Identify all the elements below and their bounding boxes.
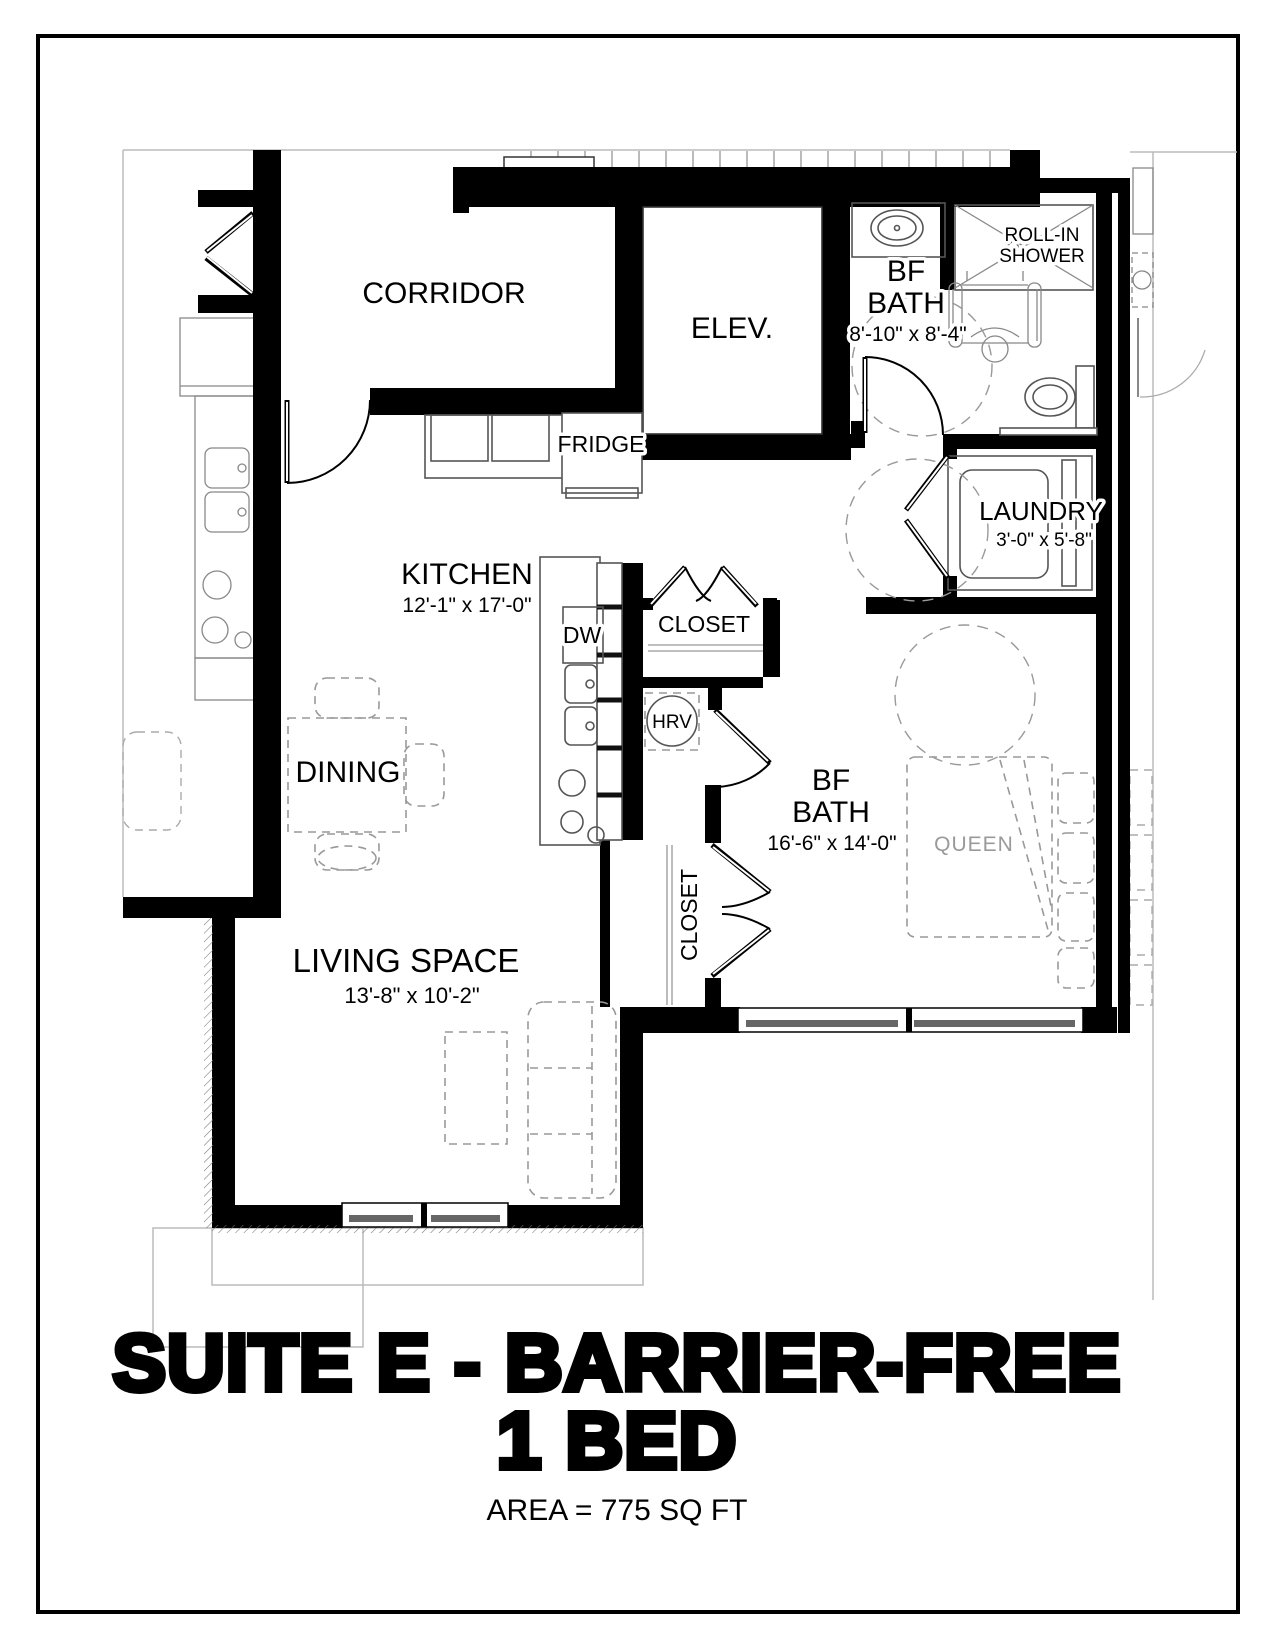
kitchen-dims: 12'-1" x 17'-0" (402, 594, 531, 617)
patio-outline (212, 1228, 643, 1285)
suite-title-line1: SUITE E - BARRIER-FREE (113, 1318, 1122, 1407)
bf-bath-label-line2: BATH (867, 287, 945, 320)
suite-title-line2: 1 BED (497, 1396, 738, 1485)
dining-chair (404, 744, 444, 806)
bf-bath-dims: 8'-10" x 8'-4" (849, 323, 966, 346)
bedroom-label-line2: BATH (792, 796, 870, 829)
dishwasher-label: DW (563, 622, 602, 648)
entry-door-swing (287, 400, 370, 483)
bedroom-label-line1: BF (812, 764, 850, 797)
adjacent-furniture (1130, 770, 1152, 1005)
hall-closet-label: CLOSET (658, 611, 750, 637)
bath-door-swing (865, 357, 943, 435)
living-space-dims: 13'-8" x 10'-2" (344, 983, 479, 1008)
dining-label: DINING (296, 756, 401, 789)
grab-bar (1000, 428, 1097, 435)
hrv-label: HRV (652, 712, 692, 733)
laundry-bifold (906, 455, 948, 578)
adjacent-chair (123, 732, 181, 830)
roll-in-shower-label-line1: ROLL-IN (1005, 225, 1080, 246)
kitchen-sink (565, 665, 597, 703)
laundry-label: LAUNDRY (979, 496, 1103, 526)
floor-plan: CORRIDOR ELEV. BF BATH 8'-10" x 8'-4" RO… (0, 0, 1275, 1650)
bedroom-dims: 16'-6" x 14'-0" (767, 832, 896, 855)
stove-burner (559, 770, 585, 796)
living-space-label: LIVING SPACE (293, 942, 520, 979)
adjacent-bath (1132, 168, 1205, 397)
queen-bed-label: QUEEN (934, 833, 1014, 856)
side-table (318, 846, 376, 870)
walls (123, 150, 1130, 1228)
windows (342, 1008, 1083, 1227)
area-note: AREA = 775 SQ FT (487, 1494, 748, 1527)
drawing-sheet: CORRIDOR ELEV. BF BATH 8'-10" x 8'-4" RO… (0, 0, 1275, 1650)
dining-chair (315, 834, 379, 870)
adjacent-closet-bifold (206, 213, 253, 295)
corridor-label: CORRIDOR (362, 277, 525, 310)
bedroom-closet-bifold (712, 845, 770, 976)
bf-bath-label-line1: BF (887, 255, 925, 288)
sofa (528, 1002, 616, 1198)
laundry-dims: 3'-0" x 5'-8" (996, 530, 1092, 551)
dining-chair (315, 678, 379, 718)
hall-closet-bifold (650, 567, 757, 606)
coffee-table (445, 1032, 507, 1144)
fridge-label: FRIDGE (558, 431, 645, 457)
bedroom-closet-label: CLOSET (676, 869, 702, 961)
kitchen-label: KITCHEN (401, 558, 533, 591)
toilet-tank (1076, 366, 1094, 428)
roll-in-shower-label-line2: SHOWER (999, 246, 1085, 267)
bedroom-door-swing (716, 763, 770, 787)
adjacent-kitchen (180, 318, 257, 700)
exterior-hatch-west (204, 918, 213, 1228)
title-block: SUITE E - BARRIER-FREE 1 BED AREA = 775 … (113, 1318, 1122, 1527)
elevator-label: ELEV. (691, 312, 773, 345)
wheelchair-symbol (949, 271, 1041, 362)
